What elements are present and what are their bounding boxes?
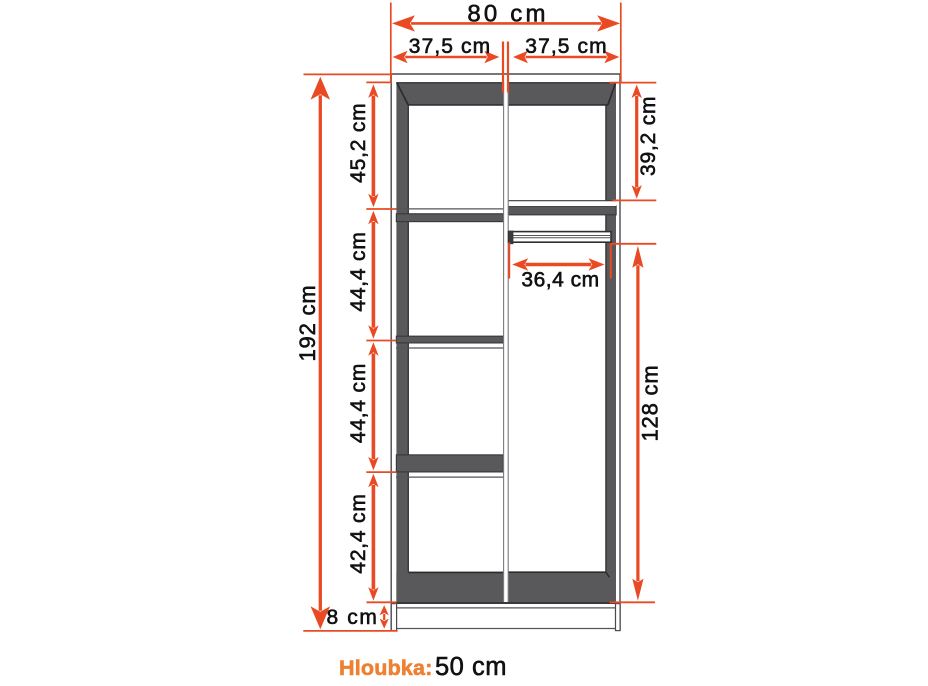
svg-text:42,4 cm: 42,4 cm (347, 493, 370, 573)
svg-text:44,4 cm: 44,4 cm (347, 363, 370, 443)
svg-text:45,2 cm: 45,2 cm (347, 103, 370, 183)
svg-text:37,5 cm: 37,5 cm (525, 35, 607, 58)
svg-text:37,5 cm: 37,5 cm (409, 35, 491, 58)
svg-text:192 cm: 192 cm (295, 285, 320, 362)
svg-text:80 cm: 80 cm (467, 0, 548, 27)
svg-text:39,2 cm: 39,2 cm (637, 96, 660, 176)
svg-text:36,4 cm: 36,4 cm (521, 269, 599, 292)
svg-text:50 cm: 50 cm (435, 653, 507, 681)
svg-text:128 cm: 128 cm (638, 365, 663, 442)
svg-text:Hloubka:: Hloubka: (339, 656, 433, 680)
svg-text:44,4 cm: 44,4 cm (347, 231, 370, 311)
svg-text:8 cm: 8 cm (327, 606, 379, 629)
